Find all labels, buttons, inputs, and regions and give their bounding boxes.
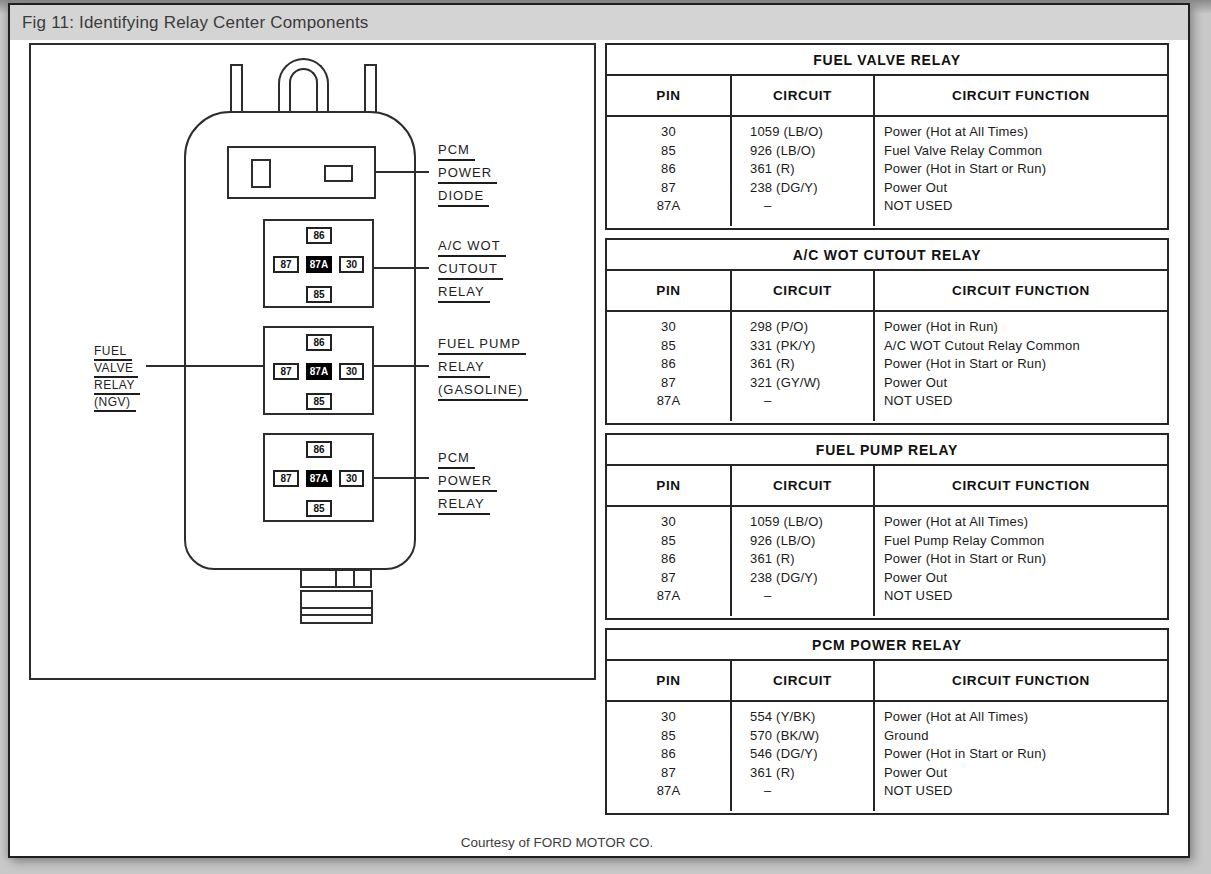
label-line: PCM [438,142,475,161]
figure-window: Fig 11: Identifying Relay Center Compone… [8,3,1190,858]
function-value: Power (Hot in Start or Run) [884,745,1167,764]
column-header-circuit: CIRCUIT [732,661,875,702]
circuit-value: 361 (R) [750,160,873,179]
function-value: Power (Hot in Start or Run) [884,550,1167,569]
relay-table: PCM POWER RELAY PIN CIRCUIT CIRCUIT FUNC… [605,628,1169,815]
function-value: Power (Hot in Run) [884,318,1167,337]
pin-value: 87A [607,392,730,411]
pin-87a-box: 87A [306,470,332,487]
circuit-value: – [750,392,873,411]
circuit-value: 361 (R) [750,550,873,569]
courtesy-note: Courtesy of FORD MOTOR CO. [461,835,654,850]
figure-title: Fig 11: Identifying Relay Center Compone… [22,13,369,33]
label-line: RELAY [438,284,490,303]
pin-85-box: 85 [306,393,332,410]
pin-86-box: 86 [306,334,332,351]
pin-85-box: 85 [306,500,332,517]
relay-table-title: A/C WOT CUTOUT RELAY [607,240,1167,271]
label-line: VALVE [94,363,138,378]
pin-87a-box: 87A [306,363,332,380]
pin-value: 87A [607,782,730,801]
circuit-value: 926 (LB/O) [750,532,873,551]
circuit-value: 331 (PK/Y) [750,337,873,356]
circuit-value: 926 (LB/O) [750,142,873,161]
function-value: Power (Hot at All Times) [884,513,1167,532]
column-header-circuit: CIRCUIT [732,76,875,117]
leader-line-pcm-power-diode [376,171,429,173]
pin-value: 30 [607,318,730,337]
pin-30-box: 30 [339,256,364,273]
relay-table: A/C WOT CUTOUT RELAY PIN CIRCUIT CIRCUIT… [605,238,1169,425]
function-value: NOT USED [884,197,1167,216]
function-value: Power Out [884,374,1167,393]
circuit-value: 570 (BK/W) [750,727,873,746]
relay-center-mount-tab-right [364,64,377,113]
function-column: Power (Hot at All Times)Fuel Pump Relay … [875,507,1167,616]
circuit-column: 554 (Y/BK)570 (BK/W)546 (DG/Y)361 (R)– [732,702,875,811]
pcm-power-diode-socket [227,146,376,199]
function-value: Power Out [884,179,1167,198]
relay-table: FUEL PUMP RELAY PIN CIRCUIT CIRCUIT FUNC… [605,433,1169,620]
function-column: Power (Hot at All Times)GroundPower (Hot… [875,702,1167,811]
relay-table-title: FUEL PUMP RELAY [607,435,1167,466]
pin-87a-box: 87A [306,256,332,273]
pin-column: 3085868787A [607,117,732,226]
label-fuel-valve-relay: FUELVALVERELAY(NGV) [94,346,140,414]
relay-table: FUEL VALVE RELAY PIN CIRCUIT CIRCUIT FUN… [605,43,1169,230]
label-line: RELAY [94,380,140,395]
function-value: NOT USED [884,587,1167,606]
circuit-column: 1059 (LB/O)926 (LB/O)361 (R)238 (DG/Y)– [732,117,875,226]
relay-block-fuel-pump: 86 87 87A 30 85 [263,326,374,415]
label-line: DIODE [438,188,489,207]
function-value: Power Out [884,764,1167,783]
connector-divider [335,571,337,586]
label-pcm-power-diode: PCMPOWERDIODE [438,142,497,211]
label-line: PCM [438,450,475,469]
bottom-connector-lower [300,590,373,624]
circuit-value: – [750,782,873,801]
circuit-value: 238 (DG/Y) [750,569,873,588]
circuit-value: 238 (DG/Y) [750,179,873,198]
label-line: RELAY [438,359,490,378]
label-line: POWER [438,165,497,184]
function-value: Fuel Valve Relay Common [884,142,1167,161]
pin-87-box: 87 [273,363,299,380]
column-header-pin: PIN [607,76,732,117]
column-header-circuit-function: CIRCUIT FUNCTION [875,76,1167,117]
pin-86-box: 86 [306,441,332,458]
leader-line-fuel-valve [146,365,263,367]
function-value: NOT USED [884,392,1167,411]
function-value: Power (Hot at All Times) [884,708,1167,727]
function-value: Ground [884,727,1167,746]
pin-value: 87 [607,764,730,783]
relay-table-title: PCM POWER RELAY [607,630,1167,661]
leader-line-pcm-power-relay [374,477,429,479]
pin-column: 3085868787A [607,702,732,811]
label-fuel-pump-relay: FUEL PUMPRELAY(GASOLINE) [438,336,528,405]
function-value: Fuel Pump Relay Common [884,532,1167,551]
function-column: Power (Hot at All Times)Fuel Valve Relay… [875,117,1167,226]
circuit-value: 554 (Y/BK) [750,708,873,727]
relay-pin-tables: FUEL VALVE RELAY PIN CIRCUIT CIRCUIT FUN… [605,43,1169,823]
pin-value: 87 [607,374,730,393]
function-value: Power (Hot at All Times) [884,123,1167,142]
pin-value: 86 [607,550,730,569]
circuit-value: 321 (GY/W) [750,374,873,393]
pin-value: 30 [607,708,730,727]
label-pcm-power-relay: PCMPOWERRELAY [438,450,497,519]
bottom-connector-upper [300,569,372,588]
column-header-pin: PIN [607,661,732,702]
connector-divider [353,571,355,586]
relay-center-diagram: 86 87 87A 30 85 86 87 87A 30 85 86 87 87… [29,43,596,680]
pin-column: 3085868787A [607,312,732,421]
pin-30-box: 30 [339,363,364,380]
column-header-pin: PIN [607,271,732,312]
diode-terminal-square [251,159,271,188]
column-header-circuit-function: CIRCUIT FUNCTION [875,271,1167,312]
column-header-pin: PIN [607,466,732,507]
label-line: (NGV) [94,397,136,412]
function-value: Power Out [884,569,1167,588]
circuit-column: 1059 (LB/O)926 (LB/O)361 (R)238 (DG/Y)– [732,507,875,616]
connector-rib [302,607,371,609]
diode-terminal-rect [324,165,353,182]
column-header-circuit-function: CIRCUIT FUNCTION [875,661,1167,702]
pin-86-box: 86 [306,227,332,244]
leader-line-ac-wot-cutout [374,267,429,269]
label-ac-wot-cutout-relay: A/C WOTCUTOUTRELAY [438,238,506,307]
relay-block-ac-wot-cutout: 86 87 87A 30 85 [263,219,374,308]
circuit-value: 361 (R) [750,764,873,783]
label-line: POWER [438,473,497,492]
circuit-value: – [750,197,873,216]
circuit-value: 546 (DG/Y) [750,745,873,764]
circuit-column: 298 (P/O)331 (PK/Y)361 (R)321 (GY/W)– [732,312,875,421]
figure-title-bar: Fig 11: Identifying Relay Center Compone… [10,5,1188,40]
pin-value: 87A [607,197,730,216]
label-line: A/C WOT [438,238,506,257]
column-header-circuit: CIRCUIT [732,271,875,312]
pin-value: 85 [607,337,730,356]
pin-value: 86 [607,745,730,764]
label-line: FUEL [94,346,132,361]
label-line: RELAY [438,496,490,515]
circuit-value: 1059 (LB/O) [750,123,873,142]
pin-value: 30 [607,123,730,142]
label-line: FUEL PUMP [438,336,526,355]
function-value: Power (Hot in Start or Run) [884,160,1167,179]
pin-value: 85 [607,532,730,551]
circuit-value: 298 (P/O) [750,318,873,337]
pin-value: 86 [607,355,730,374]
pin-value: 87 [607,179,730,198]
pin-30-box: 30 [339,470,364,487]
relay-center-handle-inner [289,68,318,113]
pin-value: 85 [607,142,730,161]
relay-block-pcm-power: 86 87 87A 30 85 [263,433,374,522]
circuit-value: 361 (R) [750,355,873,374]
column-header-circuit: CIRCUIT [732,466,875,507]
relay-center-mount-tab-left [230,64,243,113]
circuit-value: 1059 (LB/O) [750,513,873,532]
pin-value: 85 [607,727,730,746]
pin-value: 87A [607,587,730,606]
column-header-circuit-function: CIRCUIT FUNCTION [875,466,1167,507]
pin-85-box: 85 [306,286,332,303]
pin-value: 30 [607,513,730,532]
label-line: (GASOLINE) [438,382,528,401]
function-value: A/C WOT Cutout Relay Common [884,337,1167,356]
pin-87-box: 87 [273,256,299,273]
circuit-value: – [750,587,873,606]
leader-line-fuel-pump [374,365,429,367]
pin-value: 86 [607,160,730,179]
function-value: Power (Hot in Start or Run) [884,355,1167,374]
function-value: NOT USED [884,782,1167,801]
connector-rib [302,614,371,616]
function-column: Power (Hot in Run)A/C WOT Cutout Relay C… [875,312,1167,421]
pin-87-box: 87 [273,470,299,487]
relay-table-title: FUEL VALVE RELAY [607,45,1167,76]
pin-column: 3085868787A [607,507,732,616]
label-line: CUTOUT [438,261,503,280]
pin-value: 87 [607,569,730,588]
